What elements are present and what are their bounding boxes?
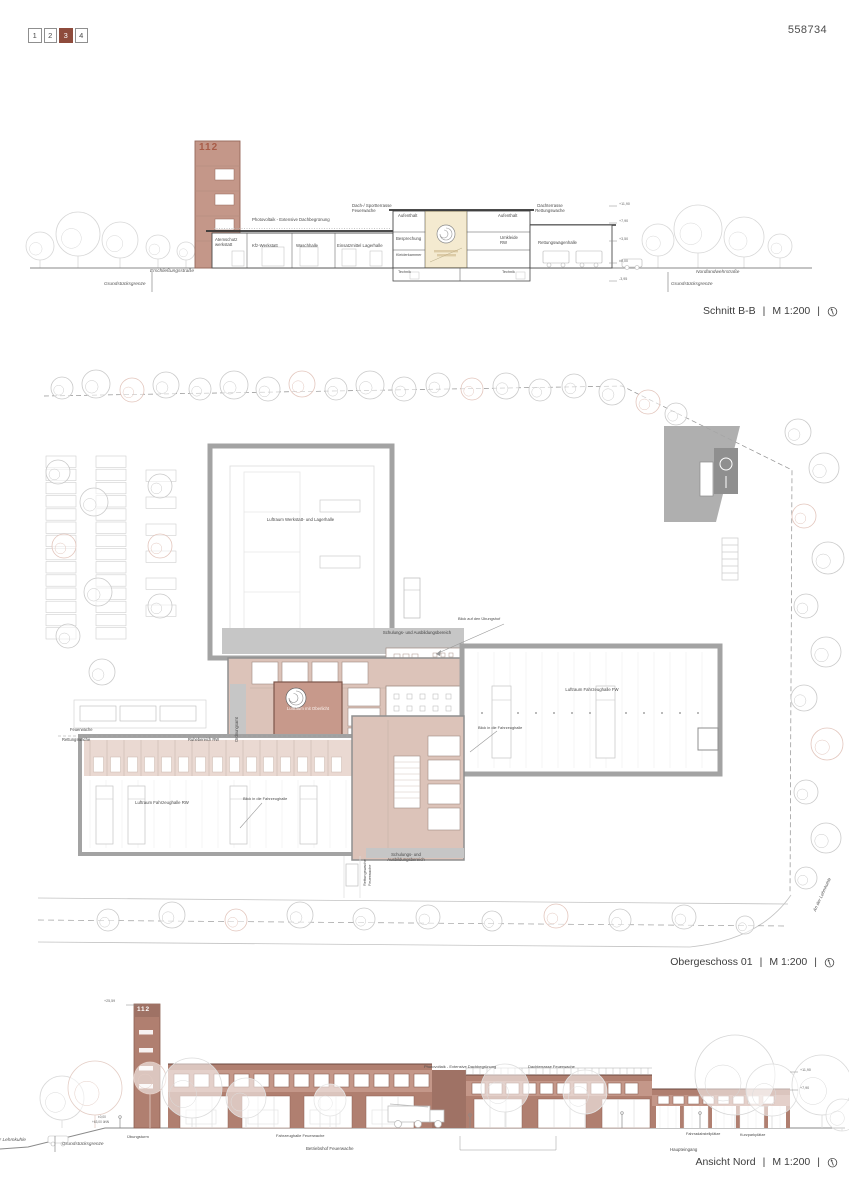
- label-photovoltaik: Photovoltaik - Extensive Dachbegrünung: [252, 217, 330, 222]
- elevation-tower-number: 112: [137, 1006, 150, 1013]
- section-graphics: [26, 141, 812, 292]
- label-blick-fahrzeughalle-1: Blick in die Fahrzeughalle: [478, 726, 522, 731]
- elevation-graphics: [0, 1004, 849, 1152]
- separator: |: [814, 956, 817, 968]
- label-atemschutzwerkstatt: Atemschutz werkstatt: [215, 237, 239, 247]
- level-unn: +63,00 üNN: [92, 1121, 109, 1125]
- elevation-scale: M 1:200: [772, 1156, 810, 1168]
- label-dach-sportterrasse: Dach-/ Sportterrasse Feuerwache: [352, 203, 400, 213]
- separator: |: [817, 305, 820, 317]
- sheet-number: 558734: [788, 24, 827, 36]
- label-einsatzmittel: Einsatzmittel Lagerhalle: [337, 243, 383, 248]
- label-feuerwache-vert: Feuerwache: [368, 859, 373, 886]
- level-upper: +11,90: [800, 1068, 811, 1072]
- label-waschhalle: Waschhalle: [296, 243, 318, 248]
- label-boundary-left: Grundstücksgrenze: [104, 282, 146, 288]
- page-tab-3[interactable]: 3: [59, 28, 73, 43]
- plan-title: Obergeschoss 01 | M 1:200 |: [670, 956, 835, 968]
- label-luftraum-rw: Luftraum Fahrzeughalle RW: [122, 800, 202, 805]
- level-mark: -3,95: [619, 277, 627, 281]
- label-luftraum-werkstatt: Luftraum Werkstatt- und Lagerhalle: [258, 517, 343, 522]
- label-technik-2: Technik: [502, 270, 515, 275]
- separator: |: [817, 1156, 820, 1168]
- plan-graphics: [38, 370, 844, 947]
- label-ordnungsamt: Ordnungsamt: [235, 717, 240, 742]
- section-scale: M 1:200: [772, 305, 810, 317]
- label-boundary-right: Grundstücksgrenze: [671, 282, 713, 288]
- label-fahrradabstellplaetze: Fahrradabstellplätze: [686, 1132, 720, 1137]
- label-photovoltaik-elev: Photovoltaik - Extensive Dachbegrünung: [424, 1065, 496, 1070]
- level-mark: +3,50: [619, 237, 628, 241]
- label-rettungswagenhalle: Rettungswagenhalle: [538, 240, 577, 245]
- level-mark: +7,90: [619, 219, 628, 223]
- label-luftraum-fw: Luftraum Fahrzeughalle FW: [552, 687, 632, 692]
- label-blick-uebungshof: Blick auf den Übungshof: [458, 617, 500, 622]
- page-tab-2[interactable]: 2: [44, 28, 58, 43]
- level-tower: +25,59: [104, 999, 115, 1003]
- label-fahrzeughalle-elev: Fahrzeughalle Feuerwache: [276, 1134, 324, 1139]
- section-title-text: Schnitt B-B: [703, 305, 756, 317]
- section-tower-number: 112: [199, 142, 218, 153]
- label-schulung-unten: Schulungs- und Ausbildungsbereich: [380, 852, 432, 862]
- page-tab-4[interactable]: 4: [75, 28, 89, 43]
- label-haupteingang: Haupteingang: [670, 1147, 697, 1152]
- label-technik-1: Technik: [398, 270, 411, 275]
- label-kfz-werkstatt: Kfz-Werkstatt: [252, 243, 278, 248]
- section-title: Schnitt B-B | M 1:200 |: [703, 305, 838, 317]
- label-dachterrasse-rw: Dachterrasse Rettungswache: [528, 203, 572, 213]
- label-ruhebereich: Ruhebereich RW: [188, 738, 219, 743]
- label-uebungsturm: Übungsturm: [127, 1135, 149, 1140]
- plan-workshop-hall: [210, 446, 392, 658]
- level-mid: +7,90: [800, 1086, 809, 1090]
- label-blick-fahrzeughalle-2: Blick in die Fahrzeughalle: [243, 797, 287, 802]
- label-feuerwache: Feuerwache: [70, 728, 93, 733]
- label-rettungswache: Rettungswache: [62, 738, 90, 743]
- label-kleiderkammer: Kleiderkammer: [396, 253, 422, 258]
- label-besprechung: Besprechung: [396, 236, 421, 241]
- separator: |: [763, 1156, 766, 1168]
- label-an-der-lehmkuhle-elev: An der Lehmkuhle: [0, 1138, 26, 1144]
- label-luftraum-oberlicht: Luftraum mit Oberlicht: [283, 706, 333, 711]
- north-arrow-icon: [827, 1157, 838, 1168]
- label-rettungswache-feuerwache-vert: Rettungswache Feuerwache: [363, 859, 372, 886]
- drawings-canvas: [0, 0, 849, 1200]
- separator: |: [763, 305, 766, 317]
- separator: |: [760, 956, 763, 968]
- elevation-title: Ansicht Nord | M 1:200 |: [695, 1156, 838, 1168]
- label-aufenthalt-links: Aufenthalt: [398, 213, 417, 218]
- label-kurzparkplaetze: Kurzparkplätze: [740, 1133, 765, 1138]
- label-street-right: Nordlandwehrstraße: [696, 270, 739, 276]
- label-street-left: Erschließungsstraße: [150, 269, 194, 275]
- label-aufenthalt-rechts: Aufenthalt: [498, 213, 517, 218]
- label-dachterrasse-elev: Dachterrasse Feuerwache: [528, 1065, 575, 1070]
- page-tab-1[interactable]: 1: [28, 28, 42, 43]
- page-indicator: 1 2 3 4: [28, 28, 88, 43]
- label-grundstuecksgrenze-elev: Grundstücksgrenze: [62, 1142, 104, 1148]
- label-schulung-oben: Schulungs- und Ausbildungsbereich: [372, 630, 462, 635]
- plan-title-text: Obergeschoss 01: [670, 956, 752, 968]
- level-mark: ±0,00: [619, 259, 628, 263]
- label-umkleide: Umkleide RW: [500, 235, 520, 245]
- north-arrow-icon: [824, 957, 835, 968]
- level-mark: +11,90: [619, 202, 630, 206]
- north-arrow-icon: [827, 306, 838, 317]
- label-betriebshof: Betriebshof Feuerwache: [306, 1146, 354, 1151]
- elevation-title-text: Ansicht Nord: [695, 1156, 755, 1168]
- drawing-sheet: 1 2 3 4 558734 112 Photovoltaik - Extens…: [0, 0, 849, 1200]
- plan-scale: M 1:200: [769, 956, 807, 968]
